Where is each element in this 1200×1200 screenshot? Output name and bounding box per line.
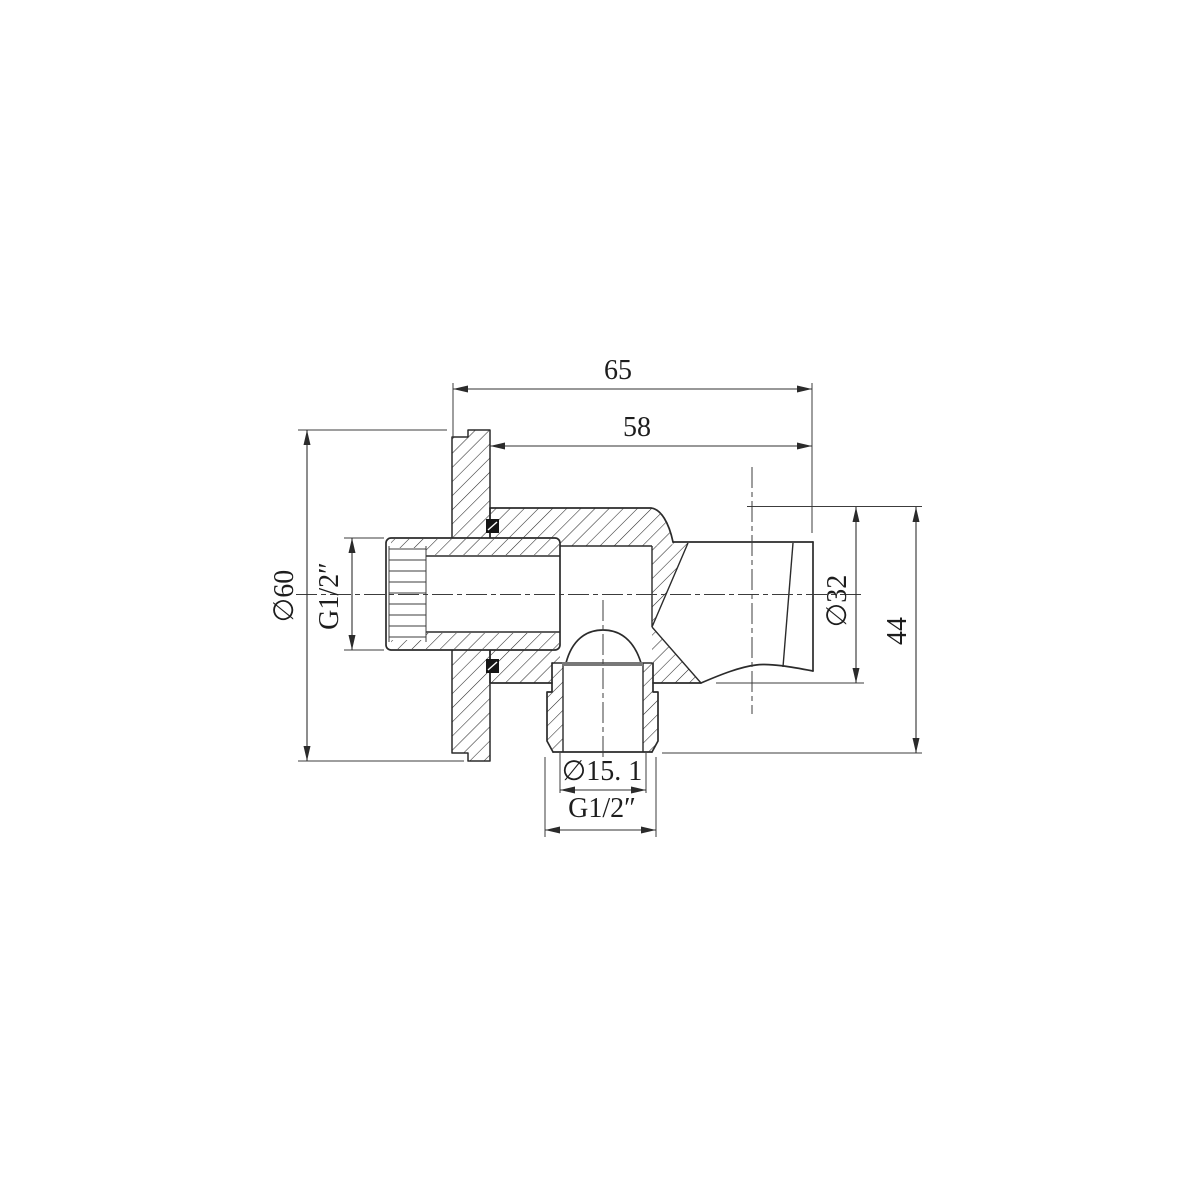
holder-bottom-curve bbox=[701, 664, 813, 683]
shower-outlet-technical-drawing: 65 58 ∅60 G1/2″ ∅32 44 ∅15. 1 bbox=[0, 0, 1200, 1200]
dimension-overall-height: 44 bbox=[882, 507, 920, 753]
handset-holder-section bbox=[673, 542, 813, 683]
holder-inner-taper bbox=[783, 543, 793, 667]
dimension-flange-diameter: ∅60 bbox=[269, 430, 311, 761]
dimension-overall-depth-label: 65 bbox=[604, 355, 632, 386]
drawing-page: 65 58 ∅60 G1/2″ ∅32 44 ∅15. 1 bbox=[0, 0, 1200, 1200]
dimension-flange-diameter-label: ∅60 bbox=[269, 570, 300, 622]
dimension-outlet-bore: ∅15. 1 bbox=[560, 756, 646, 794]
dimension-holder-to-wall: 58 bbox=[490, 412, 812, 450]
dimension-holder-diameter-label: ∅32 bbox=[822, 575, 853, 627]
dimension-outlet-bore-label: ∅15. 1 bbox=[562, 756, 642, 787]
dimension-overall-height-label: 44 bbox=[882, 617, 913, 645]
dimension-holder-to-wall-label: 58 bbox=[623, 412, 651, 443]
dimension-overall-depth: 65 bbox=[453, 355, 812, 393]
dimension-outlet-thread: G1/2″ bbox=[545, 793, 656, 834]
dimension-outlet-thread-label: G1/2″ bbox=[568, 793, 636, 824]
dimension-inlet-thread-label: G1/2″ bbox=[314, 562, 345, 630]
